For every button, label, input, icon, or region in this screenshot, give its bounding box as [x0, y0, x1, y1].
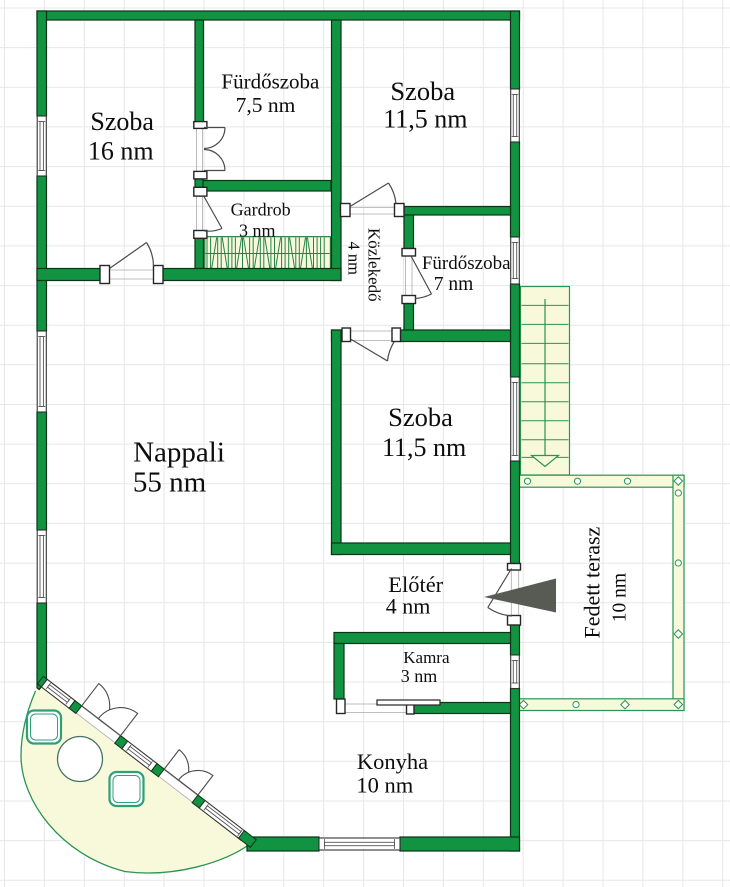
svg-text:Nappali: Nappali — [133, 437, 225, 469]
svg-text:Kamra: Kamra — [403, 648, 450, 667]
svg-text:Fürdőszoba: Fürdőszoba — [221, 69, 320, 93]
svg-text:3 nm: 3 nm — [401, 666, 438, 686]
svg-text:4 nm: 4 nm — [386, 593, 431, 618]
svg-text:55 nm: 55 nm — [133, 467, 207, 499]
svg-text:3 nm: 3 nm — [239, 220, 276, 240]
svg-text:Szoba: Szoba — [388, 402, 453, 432]
svg-text:10 nm: 10 nm — [610, 573, 631, 622]
svg-text:Fedett terasz: Fedett terasz — [580, 526, 605, 638]
svg-text:7,5 nm: 7,5 nm — [236, 93, 296, 117]
svg-text:Fürdőszoba: Fürdőszoba — [422, 253, 511, 274]
svg-text:7 nm: 7 nm — [434, 274, 474, 295]
svg-text:16 nm: 16 nm — [88, 137, 154, 166]
svg-text:Konyha: Konyha — [357, 749, 428, 774]
svg-text:11,5 nm: 11,5 nm — [382, 433, 466, 462]
svg-text:11,5 nm: 11,5 nm — [383, 104, 467, 133]
svg-text:Közlekedő: Közlekedő — [365, 228, 384, 302]
svg-text:Szoba: Szoba — [90, 107, 154, 136]
svg-text:10 nm: 10 nm — [356, 773, 413, 798]
svg-text:Gardrob: Gardrob — [231, 199, 291, 219]
svg-text:4 nm: 4 nm — [345, 242, 364, 276]
svg-text:Szoba: Szoba — [390, 76, 455, 106]
